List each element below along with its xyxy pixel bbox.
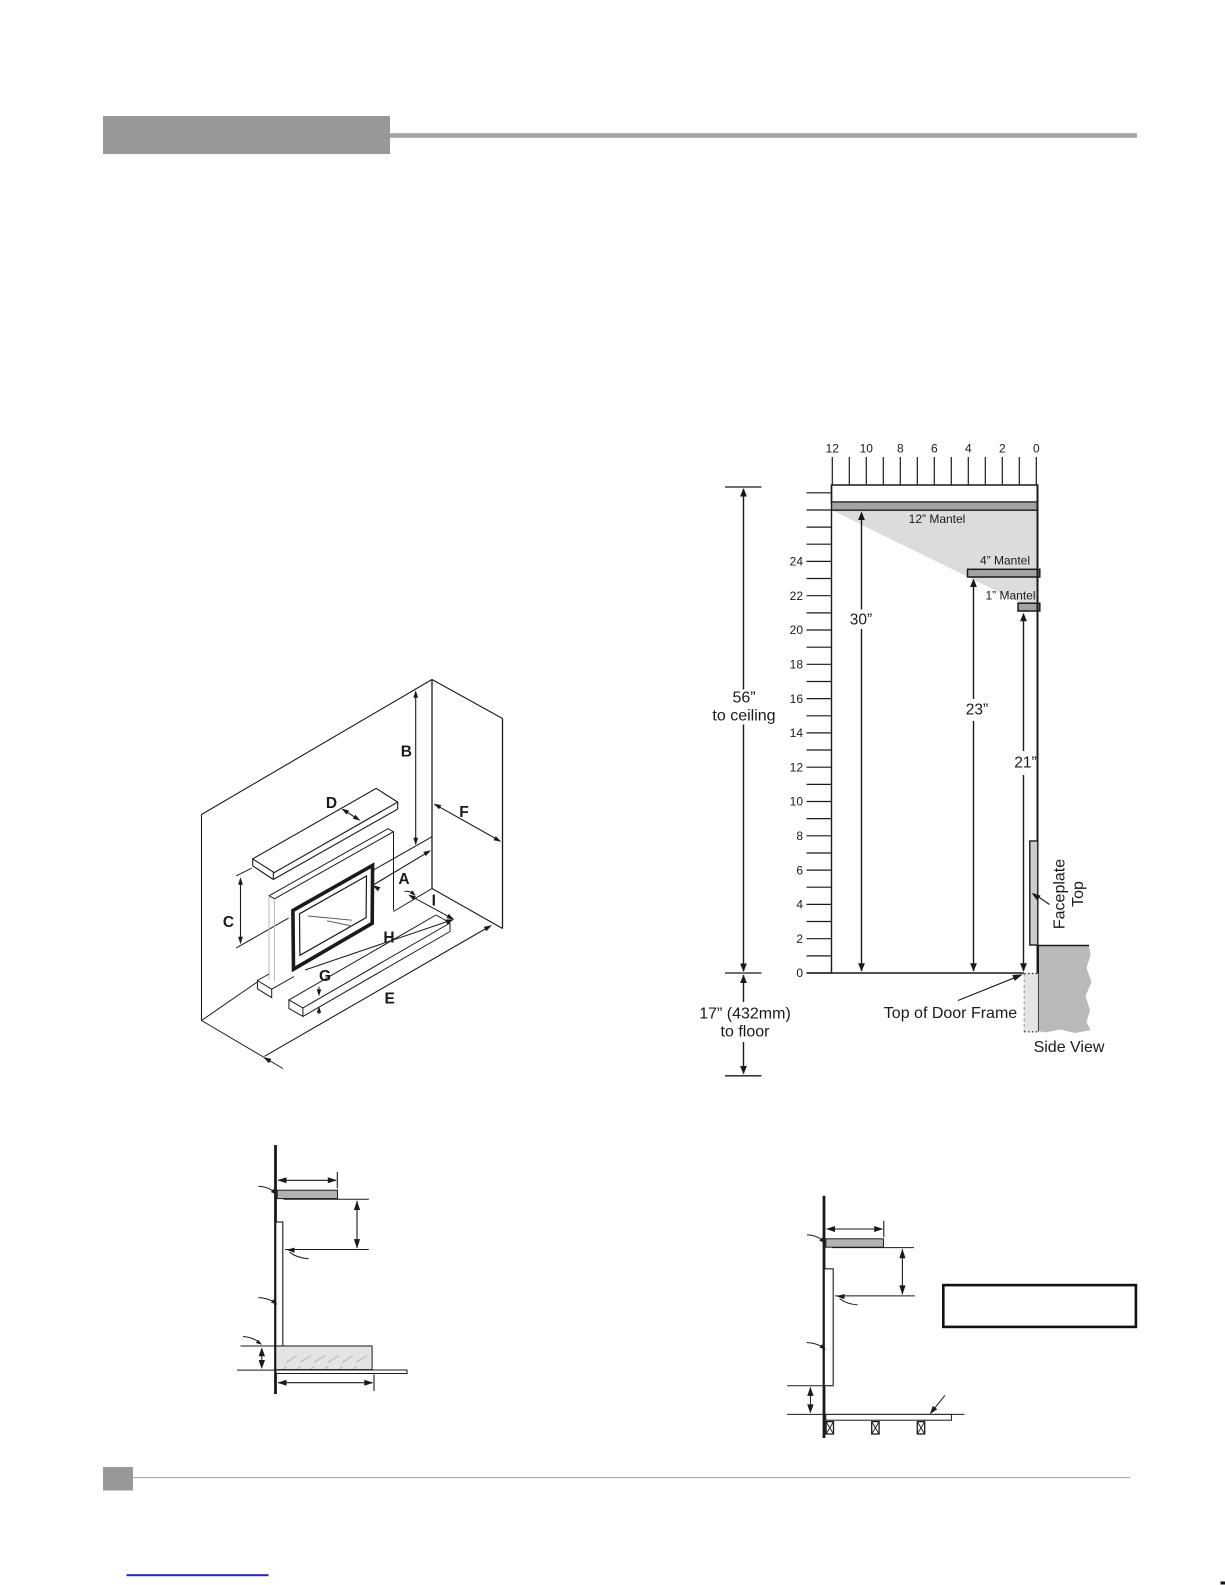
svg-text:C: C	[223, 914, 234, 931]
svg-text:20: 20	[790, 623, 804, 637]
svg-text:8: 8	[897, 442, 904, 456]
svg-text:23”: 23”	[966, 702, 988, 719]
svg-text:4: 4	[965, 442, 972, 456]
svg-text:4: 4	[796, 898, 803, 912]
svg-text:G: G	[319, 968, 331, 985]
svg-text:6: 6	[931, 442, 938, 456]
svg-text:H: H	[383, 930, 394, 947]
svg-text:12: 12	[790, 760, 804, 774]
svg-text:to floor: to floor	[721, 1024, 771, 1041]
svg-text:A: A	[398, 871, 409, 888]
svg-text:30”: 30”	[850, 612, 872, 629]
svg-text:F: F	[459, 804, 468, 821]
svg-text:D: D	[326, 795, 337, 812]
svg-text:Top of Door Frame: Top of Door Frame	[884, 1005, 1017, 1022]
svg-text:10: 10	[860, 442, 874, 456]
svg-text:22: 22	[790, 589, 804, 603]
svg-text:0: 0	[796, 966, 803, 980]
svg-text:B: B	[401, 743, 412, 760]
svg-text:Top: Top	[1070, 881, 1087, 907]
svg-text:21”: 21”	[1014, 755, 1036, 772]
svg-text:10: 10	[790, 795, 804, 809]
svg-text:14: 14	[790, 726, 804, 740]
svg-text:I: I	[432, 893, 436, 910]
svg-text:6: 6	[796, 863, 803, 877]
svg-text:16: 16	[790, 692, 804, 706]
svg-text:12” Mantel: 12” Mantel	[909, 512, 966, 526]
svg-text:24: 24	[790, 555, 804, 569]
svg-text:17” (432mm): 17” (432mm)	[699, 1006, 791, 1023]
svg-text:0: 0	[1033, 442, 1040, 456]
svg-text:to ceiling: to ceiling	[712, 708, 775, 725]
svg-text:2: 2	[999, 442, 1006, 456]
svg-text:Faceplate: Faceplate	[1052, 859, 1069, 929]
svg-text:4” Mantel: 4” Mantel	[980, 554, 1030, 568]
svg-text:2: 2	[796, 932, 803, 946]
svg-text:18: 18	[790, 658, 804, 672]
svg-text:8: 8	[796, 829, 803, 843]
svg-text:E: E	[385, 990, 395, 1007]
svg-text:12: 12	[826, 442, 840, 456]
svg-text:Side View: Side View	[1034, 1039, 1105, 1056]
svg-text:56”: 56”	[732, 690, 755, 707]
svg-text:1” Mantel: 1” Mantel	[985, 589, 1035, 603]
